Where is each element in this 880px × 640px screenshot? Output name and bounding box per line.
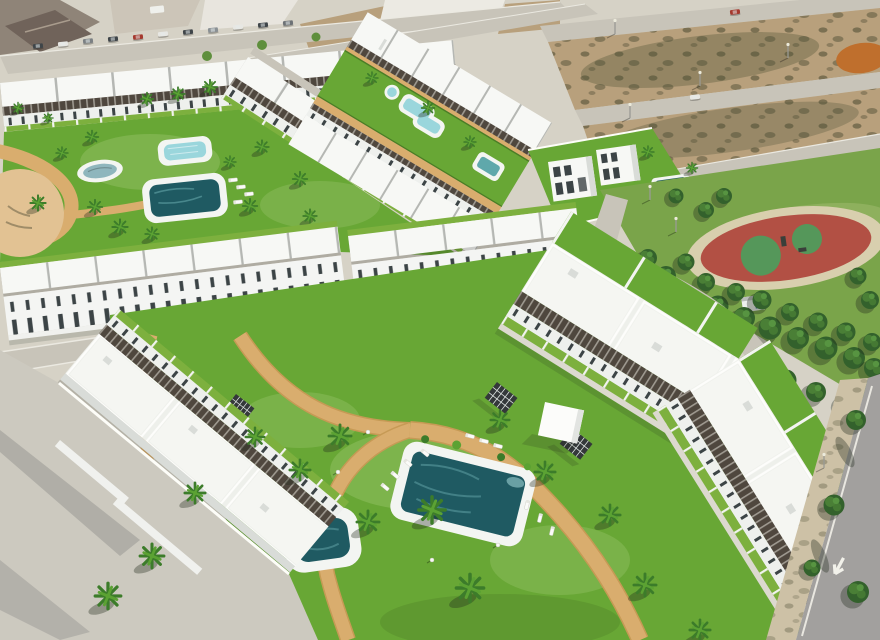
upper-main-pool — [141, 172, 229, 225]
white-van — [150, 5, 165, 13]
street-tree — [257, 40, 267, 50]
sun-lounger — [228, 178, 237, 183]
scene-svg: Aerial 3D architectural render of a new-… — [0, 0, 880, 640]
sun-lounger — [233, 200, 242, 205]
villa-1 — [548, 156, 597, 202]
sun-lounger — [244, 192, 253, 197]
street-tree — [202, 51, 212, 61]
sun-lounger — [236, 185, 245, 190]
aerial-render-image: Aerial 3D architectural render of a new-… — [0, 0, 880, 640]
street-tree — [312, 33, 321, 42]
villa-2 — [596, 144, 641, 185]
